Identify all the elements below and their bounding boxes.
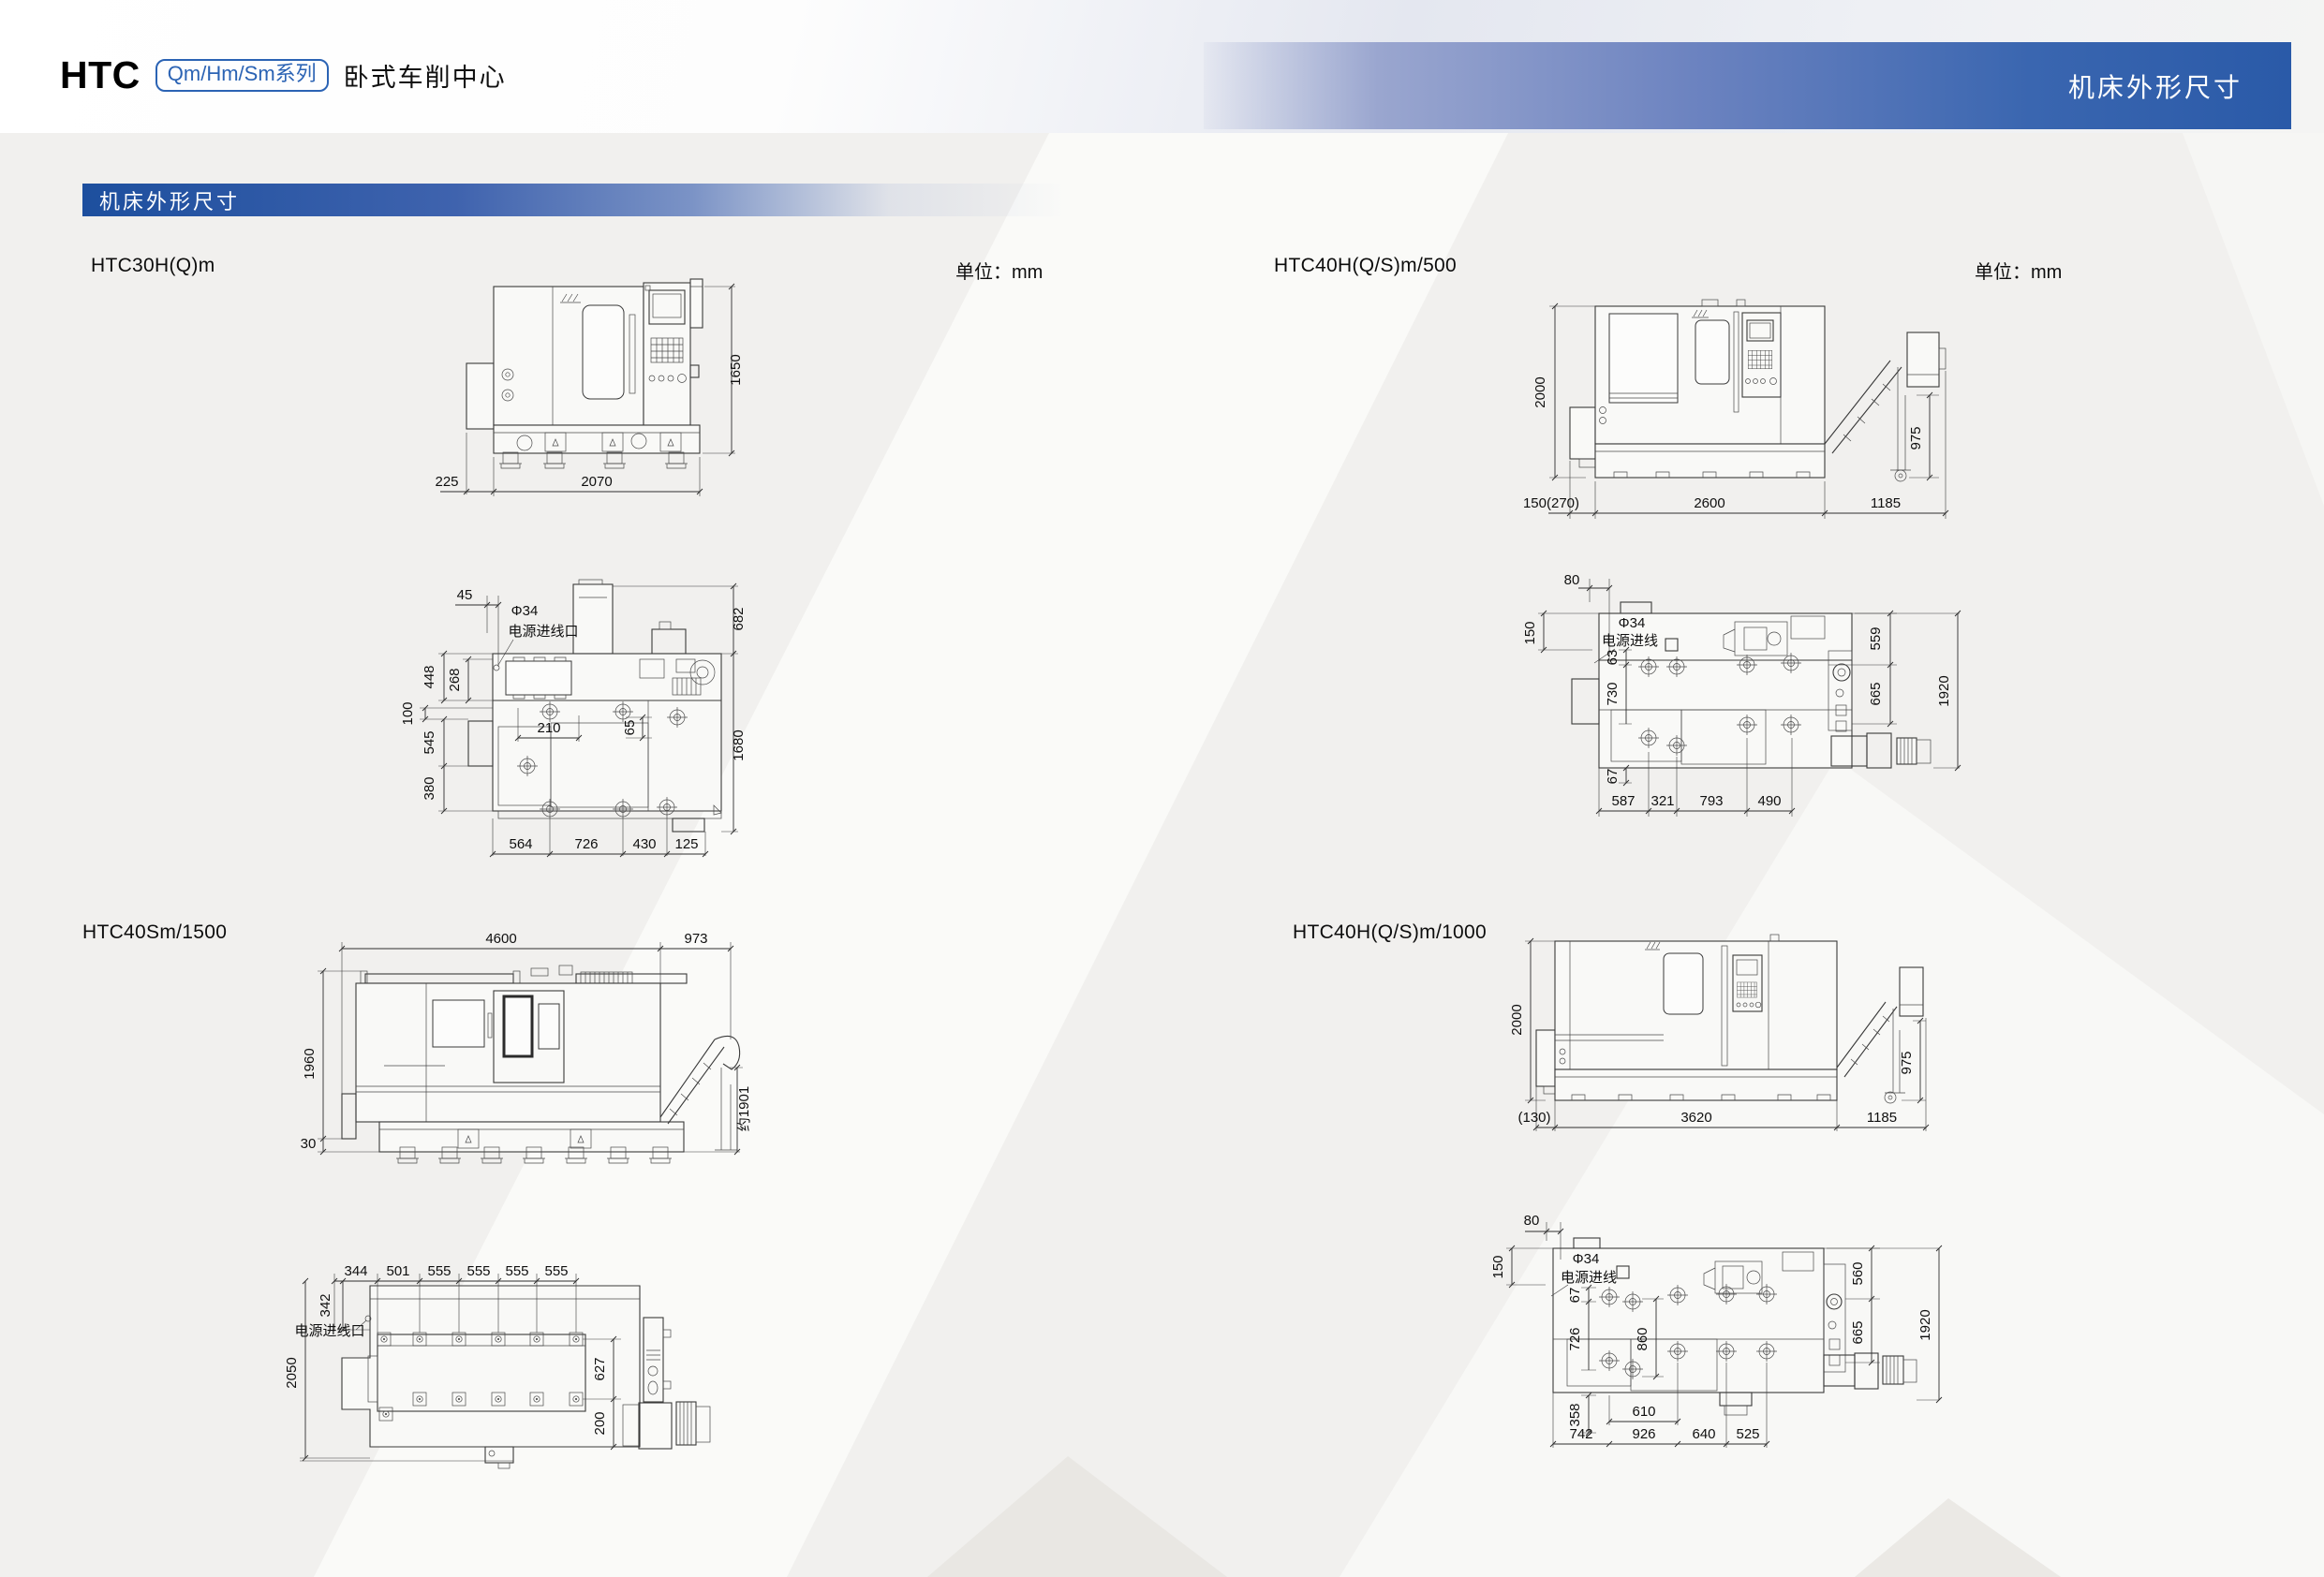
dim-1920: 1920 bbox=[1917, 1309, 1933, 1340]
dim-742: 742 bbox=[1569, 1426, 1592, 1442]
dim-430: 430 bbox=[632, 836, 656, 852]
dim-80: 80 bbox=[1524, 1213, 1540, 1229]
section-title: 机床外形尺寸 bbox=[99, 185, 240, 215]
htc40-500-top-view: 80 150 Φ34 电源进线 63 730 67 559 665 1920 bbox=[1527, 560, 2040, 874]
dim-555-1: 555 bbox=[427, 1263, 451, 1279]
dim-973: 973 bbox=[684, 931, 707, 947]
dim-210: 210 bbox=[537, 720, 560, 736]
dim-4600: 4600 bbox=[485, 931, 516, 947]
dim-100: 100 bbox=[400, 701, 416, 725]
dim-559: 559 bbox=[1868, 626, 1884, 650]
dim-501: 501 bbox=[386, 1263, 409, 1279]
dim-545: 545 bbox=[422, 730, 437, 754]
htc30-top-view: 45 Φ34 电源进线口 448 268 100 545 380 210 65 … bbox=[401, 577, 813, 906]
dim-150: 150 bbox=[1490, 1255, 1506, 1278]
dim-793: 793 bbox=[1699, 793, 1723, 809]
dim-225: 225 bbox=[435, 474, 458, 490]
dim-448: 448 bbox=[422, 665, 437, 688]
dim-627: 627 bbox=[592, 1357, 608, 1380]
title-htc40-500: HTC40H(Q/S)m/500 bbox=[1274, 255, 1457, 277]
dim-525: 525 bbox=[1736, 1426, 1759, 1442]
dim-564: 564 bbox=[509, 836, 532, 852]
dim-726: 726 bbox=[1567, 1327, 1583, 1350]
dim-555-2: 555 bbox=[466, 1263, 490, 1279]
dim-342: 342 bbox=[318, 1293, 333, 1317]
dim-125: 125 bbox=[674, 836, 698, 852]
dim-200: 200 bbox=[592, 1411, 608, 1435]
dim-490: 490 bbox=[1757, 793, 1781, 809]
dim-63: 63 bbox=[1605, 650, 1621, 666]
dim-640: 640 bbox=[1692, 1426, 1715, 1442]
page-header: HTC Qm/Hm/Sm系列 卧式车削中心 机床外形尺寸 bbox=[0, 0, 2324, 133]
htc30-top-machine bbox=[468, 580, 721, 832]
dim-610: 610 bbox=[1632, 1404, 1655, 1420]
power-inlet-label: 电源进线 bbox=[1602, 633, 1658, 649]
htc40sm-top-machine bbox=[342, 1286, 710, 1468]
htc40sm-top-view: 344 501 555 555 555 555 342 电源进线口 2050 6… bbox=[290, 1257, 923, 1530]
dim-1185: 1185 bbox=[1867, 1110, 1897, 1126]
dim-2070: 2070 bbox=[581, 474, 612, 490]
dim-587: 587 bbox=[1611, 793, 1635, 809]
dim-730: 730 bbox=[1605, 682, 1621, 705]
dim-phi34: Φ34 bbox=[1573, 1251, 1600, 1267]
dim-665: 665 bbox=[1850, 1320, 1866, 1344]
dim-358: 358 bbox=[1567, 1403, 1583, 1426]
dim-phi34: Φ34 bbox=[1619, 615, 1646, 631]
brand-row: HTC Qm/Hm/Sm系列 卧式车削中心 bbox=[60, 56, 507, 95]
title-htc40sm: HTC40Sm/1500 bbox=[82, 921, 227, 944]
series-badge: Qm/Hm/Sm系列 bbox=[155, 59, 329, 91]
section-title-bar: 机床外形尺寸 bbox=[82, 184, 1066, 216]
power-inlet-label: 电源进线 bbox=[1561, 1270, 1617, 1286]
dim-2600: 2600 bbox=[1694, 495, 1724, 511]
dim-860: 860 bbox=[1635, 1327, 1650, 1350]
dim-926: 926 bbox=[1632, 1426, 1655, 1442]
dim-67: 67 bbox=[1567, 1288, 1583, 1304]
htc40-500-side-view: 2000 975 150(270) 2600 1185 bbox=[1497, 273, 2031, 550]
dim-phi34: Φ34 bbox=[511, 603, 539, 619]
dim-1960: 1960 bbox=[302, 1048, 318, 1079]
dim-1920: 1920 bbox=[1936, 675, 1952, 706]
htc30-side-machine bbox=[466, 279, 703, 468]
htc40sm-side-machine bbox=[342, 965, 740, 1163]
htc40-500-side-machine bbox=[1570, 300, 1946, 481]
dim-682: 682 bbox=[731, 607, 747, 630]
dim-268: 268 bbox=[447, 668, 463, 691]
htc40-1000-top-view: 80 150 Φ34 电源进线 67 726 860 560 665 1920 bbox=[1497, 1208, 2045, 1522]
dim-726: 726 bbox=[574, 836, 598, 852]
dim-2000: 2000 bbox=[1532, 376, 1548, 407]
unit-label-left: 单位：mm bbox=[955, 257, 1043, 284]
title-htc30: HTC30H(Q)m bbox=[91, 255, 215, 277]
catalog-page: HTC Qm/Hm/Sm系列 卧式车削中心 机床外形尺寸 机床外形尺寸 HTC3… bbox=[0, 0, 2324, 1577]
dim-665: 665 bbox=[1868, 682, 1884, 705]
dim-30: 30 bbox=[301, 1136, 317, 1152]
dim-555-4: 555 bbox=[544, 1263, 568, 1279]
dim-975: 975 bbox=[1908, 426, 1924, 450]
htc40-1000-side-view: 2000 975 (130) 3620 1185 bbox=[1497, 922, 2031, 1173]
dim-1901: 约1901 bbox=[736, 1086, 752, 1131]
dim-380: 380 bbox=[422, 776, 437, 800]
htc40-1000-side-machine bbox=[1536, 935, 1923, 1103]
htc30-side-view: 1650 225 2070 bbox=[403, 273, 806, 508]
power-inlet-label: 电源进线口 bbox=[508, 624, 578, 640]
dim-344: 344 bbox=[344, 1263, 367, 1279]
header-banner: 机床外形尺寸 bbox=[1204, 42, 2291, 129]
dim-2050: 2050 bbox=[284, 1357, 300, 1388]
dim-3620: 3620 bbox=[1680, 1110, 1711, 1126]
dim-1680: 1680 bbox=[731, 730, 747, 760]
dim-555-3: 555 bbox=[505, 1263, 528, 1279]
dim-80: 80 bbox=[1564, 572, 1580, 588]
dim-150-270: 150(270) bbox=[1523, 495, 1579, 511]
banner-title: 机床外形尺寸 bbox=[2068, 67, 2243, 105]
dim-65: 65 bbox=[622, 720, 638, 736]
title-htc40-1000: HTC40H(Q/S)m/1000 bbox=[1293, 921, 1487, 944]
header-subtitle: 卧式车削中心 bbox=[344, 57, 507, 94]
dim-67: 67 bbox=[1605, 769, 1621, 785]
dim-975: 975 bbox=[1899, 1051, 1915, 1074]
dim-321: 321 bbox=[1650, 793, 1674, 809]
dim-130: (130) bbox=[1517, 1110, 1550, 1126]
dim-1650: 1650 bbox=[728, 354, 744, 385]
dim-45: 45 bbox=[457, 587, 473, 603]
dim-150: 150 bbox=[1522, 621, 1538, 644]
dim-2000: 2000 bbox=[1509, 1004, 1525, 1035]
brand-logo: HTC bbox=[60, 56, 141, 95]
dim-560: 560 bbox=[1850, 1261, 1866, 1285]
htc40sm-side-view: 4600 973 1960 30 约1901 bbox=[295, 925, 927, 1206]
dim-1185: 1185 bbox=[1871, 495, 1901, 511]
